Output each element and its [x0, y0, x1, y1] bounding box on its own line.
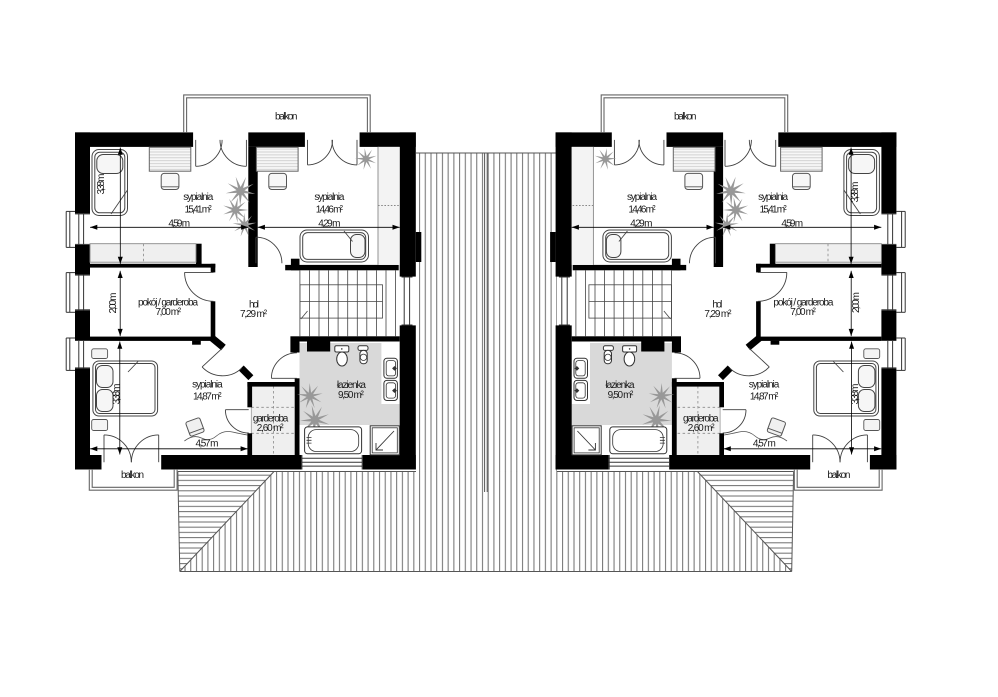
svg-text:3,38 m: 3,38 m: [112, 384, 123, 405]
svg-text:balkon: balkon: [674, 112, 697, 123]
svg-text:2,00 m: 2,00 m: [108, 293, 119, 314]
svg-text:7,29 m²: 7,29 m²: [240, 309, 268, 320]
svg-text:4,57 m: 4,57 m: [196, 439, 219, 450]
svg-text:3,38 m: 3,38 m: [96, 174, 107, 195]
svg-text:sypialnia: sypialnia: [183, 192, 213, 203]
svg-text:14,46 m²: 14,46 m²: [316, 205, 344, 216]
svg-text:7,29 m²: 7,29 m²: [704, 309, 732, 320]
svg-text:4,59 m: 4,59 m: [781, 219, 803, 230]
svg-text:2,60 m²: 2,60 m²: [688, 423, 715, 434]
svg-text:7,00 m²: 7,00 m²: [790, 307, 816, 318]
svg-text:3,38 m: 3,38 m: [850, 384, 861, 405]
svg-text:4,59 m: 4,59 m: [168, 219, 190, 230]
svg-text:sypialnia: sypialnia: [758, 192, 788, 203]
svg-text:14,87 m²: 14,87 m²: [193, 392, 222, 403]
svg-text:sypialnia: sypialnia: [627, 192, 657, 203]
svg-text:4,29 m: 4,29 m: [318, 219, 340, 230]
svg-text:2,00 m: 2,00 m: [851, 292, 862, 313]
svg-text:9,50 m²: 9,50 m²: [338, 390, 364, 401]
svg-text:15,41 m²: 15,41 m²: [760, 205, 788, 216]
svg-text:sypialnia: sypialnia: [192, 380, 223, 391]
svg-text:balkon: balkon: [121, 470, 144, 481]
svg-text:9,50 m²: 9,50 m²: [608, 390, 634, 401]
svg-text:sypialnia: sypialnia: [314, 192, 344, 203]
svg-text:balkon: balkon: [827, 470, 850, 481]
svg-text:14,46 m²: 14,46 m²: [628, 205, 656, 216]
svg-text:3,38 m: 3,38 m: [850, 182, 861, 203]
svg-text:15,41 m²: 15,41 m²: [185, 205, 213, 216]
svg-text:balkon: balkon: [275, 112, 298, 123]
svg-text:14,87 m²: 14,87 m²: [750, 392, 779, 403]
svg-text:sypialnia: sypialnia: [749, 380, 780, 391]
svg-text:2,60 m²: 2,60 m²: [257, 423, 284, 434]
svg-text:4,57 m: 4,57 m: [753, 439, 776, 450]
svg-text:7,00 m²: 7,00 m²: [156, 307, 182, 318]
svg-text:4,29 m: 4,29 m: [630, 219, 652, 230]
